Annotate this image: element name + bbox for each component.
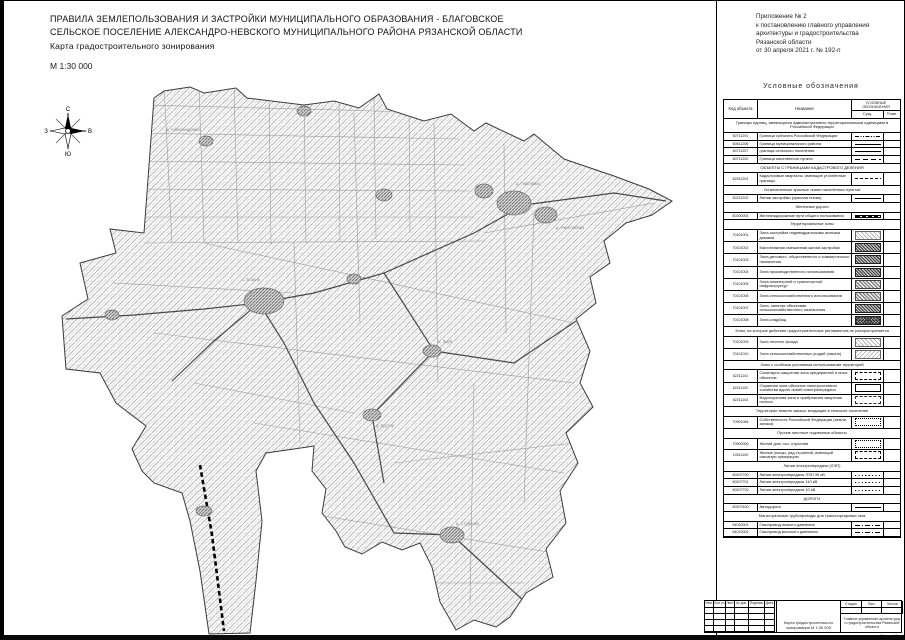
annex-note: Приложение № 2к постановлению главного у… — [756, 13, 905, 56]
revision-col-label: Кол.уч — [714, 601, 726, 608]
legend-row-name: Малоэтажная смешанная жилая застройка — [758, 242, 852, 254]
legend-row-code: 70101007 — [724, 303, 758, 315]
legend-row-symbol — [852, 439, 884, 450]
legend-row-name: Санитарно-защитная зона предприятий и ин… — [758, 370, 852, 382]
legend-row-name: граница сельского поселения — [758, 148, 852, 156]
settlement-label: д. Николаевка — [556, 225, 584, 230]
rect-solid-swatch-icon — [855, 384, 881, 392]
legend-col-symbols: УСЛОВНЫЕ ОБОЗНАЧЕНИЯ — [852, 100, 900, 111]
legend-title: Условные обозначения — [718, 83, 904, 90]
legend-row-plan — [884, 487, 900, 495]
map-sheet: ПРАВИЛА ЗЕМЛЕПОЛЬЗОВАНИЯ И ЗАСТРОЙКИ МУН… — [0, 0, 905, 640]
legend-section: Зоны с особыми условиями использования т… — [724, 361, 900, 371]
legend-section: Территории земель запаса, входящие в сел… — [724, 407, 900, 417]
legend-row-name: Граница населённого пункта — [758, 156, 852, 164]
stage-label: Стадия — [841, 601, 862, 608]
line-longdash-swatch-icon — [855, 159, 881, 160]
legend-row-code: 60611206 — [724, 141, 758, 149]
legend-section: Границы единиц, являющихся административ… — [724, 119, 900, 134]
legend-col-exist: Сущ. — [852, 111, 884, 119]
legend-row-code: 60711291 — [724, 133, 758, 141]
legend-row-code: 70101001 — [724, 230, 758, 242]
settlement-label: д. Александровка — [166, 127, 201, 132]
rect-dot-swatch-icon — [855, 440, 881, 448]
legend-row-symbol — [852, 156, 884, 164]
hatch-light-swatch-icon — [855, 231, 881, 240]
rect-dashdot-swatch-icon — [855, 396, 881, 404]
legend-row-code: 60711207 — [724, 148, 758, 156]
rect-dash-swatch-icon — [855, 372, 881, 380]
line-dashdot-swatch-icon — [855, 525, 881, 526]
hatch-light-swatch-icon — [855, 338, 881, 347]
legend-row-symbol — [852, 230, 884, 242]
frame-divider — [716, 1, 717, 640]
settlement-label: д. Павловка — [516, 181, 540, 186]
hatch-dark-swatch-icon — [855, 268, 881, 277]
legend-row-symbol — [852, 522, 884, 530]
legend-row-symbol — [852, 450, 884, 462]
revision-cell — [765, 626, 775, 632]
revision-col-label: Дата — [765, 601, 775, 608]
legend-row-plan — [884, 291, 900, 303]
legend-row-code: 60200001 — [724, 213, 758, 221]
legend-row-code: 70101002 — [724, 242, 758, 254]
legend-row-code: 70101004 — [724, 267, 758, 279]
legend-row-plan — [884, 242, 900, 254]
legend-row-plan — [884, 156, 900, 164]
hatch-dark-swatch-icon — [855, 304, 881, 313]
legend-row-name: Зона кладбищ — [758, 315, 852, 327]
legend-section: Линии электропередачи (ЛЭП) — [724, 462, 900, 472]
sheet-label: Лист — [862, 601, 883, 608]
line-dashdotdot-swatch-icon — [855, 136, 881, 137]
legend-row-name: Собственность Российской Федерации (земл… — [758, 417, 852, 429]
legend-row-symbol — [852, 472, 884, 480]
hatch-mid-swatch-icon — [855, 280, 881, 289]
legend-section: Территориальные зоны — [724, 220, 900, 230]
legend-row-name: Газопровод низкого давления — [758, 522, 852, 530]
legend-row-symbol — [852, 349, 884, 361]
legend-row-name: Линия электропередачи 10 кВ — [758, 487, 852, 495]
legend-row-code: 10011100 — [724, 450, 758, 462]
format-note: Формат А1 — [880, 634, 898, 638]
legend-row-name: Жилой дом, хоз. строения — [758, 439, 852, 450]
revision-col-label: Лист — [726, 601, 735, 608]
legend-row-symbol — [852, 213, 884, 221]
line-solid-swatch-icon — [855, 151, 881, 152]
legend-col-plan: План. — [884, 111, 900, 119]
legend-row-name: Кадастровые кварталы, имеющие уточнённые… — [758, 173, 852, 185]
legend-section: Железные дороги — [724, 203, 900, 213]
legend-row-name: Охранная зона объектов электросетевого х… — [758, 383, 852, 395]
legend-row-name: Зона инженерной и транспортной инфрастру… — [758, 279, 852, 291]
legend-row-symbol — [852, 315, 884, 327]
rect-dot-swatch-icon — [855, 418, 881, 426]
legend-row-name: Граница субъекта Российской Федерации — [758, 133, 852, 141]
legend-row-code: 70900000 — [724, 439, 758, 450]
legend-row-plan — [884, 148, 900, 156]
legend-row-symbol — [852, 291, 884, 303]
legend-row-name: Железнодорожные пути общего пользования — [758, 213, 852, 221]
legend-row-name: Линия электропередачи ЛЭП 35 кВ — [758, 472, 852, 480]
organization-name: Главное управление архитектуры и градост… — [841, 614, 903, 632]
legend-row-plan — [884, 315, 900, 327]
legend-row-code: 70101003 — [724, 254, 758, 266]
revision-cell — [726, 626, 735, 632]
legend-row-plan — [884, 383, 900, 395]
line-dashdot-swatch-icon — [855, 532, 881, 533]
legend-row-code: 64010002 — [724, 529, 758, 537]
revision-cell — [735, 626, 749, 632]
legend-row-plan — [884, 173, 900, 185]
territory-outline — [62, 87, 672, 634]
legend-row-plan — [884, 450, 900, 462]
legend-table: Код объекта Название УСЛОВНЫЕ ОБОЗНАЧЕНИ… — [723, 99, 901, 538]
legend-row-symbol — [852, 195, 884, 203]
legend-row-name: Граница муниципального района — [758, 141, 852, 149]
legend-row-symbol — [852, 504, 884, 512]
legend-row-plan — [884, 230, 900, 242]
legend-row-plan — [884, 349, 900, 361]
title-line-2: СЕЛЬСКОЕ ПОСЕЛЕНИЕ АЛЕКСАНДРО-НЕВСКОГО М… — [50, 26, 610, 39]
rail-swatch-icon — [855, 215, 881, 218]
revision-col-label: № док. — [735, 601, 749, 608]
subtitle: Карта градостроительного зонирования — [50, 40, 610, 53]
legend-row-name: Зона лесного фонда — [758, 337, 852, 349]
legend-row-symbol — [852, 267, 884, 279]
legend-row-code: 62211101 — [724, 370, 758, 382]
legend-row-plan — [884, 195, 900, 203]
rect-dash-swatch-icon — [855, 451, 881, 459]
legend-row-symbol — [852, 148, 884, 156]
legend-row-code: 70101010 — [724, 349, 758, 361]
legend-row-symbol — [852, 417, 884, 429]
compass-west-label: З — [44, 129, 48, 135]
settlement-label: д. Студёнки — [456, 521, 480, 526]
legend-row-plan — [884, 337, 900, 349]
settlement-label: п. Заря — [438, 339, 452, 344]
legend-row-code: 60207701 — [724, 479, 758, 487]
settlement-label: с. Благие — [242, 277, 261, 282]
legend-row-plan — [884, 370, 900, 382]
legend-section: ДОРОГИ — [724, 495, 900, 505]
revision-cell — [749, 626, 765, 632]
line-bold-swatch-icon — [855, 144, 881, 145]
legend-row-code: 70101005 — [724, 279, 758, 291]
legend-section: Установленные красные линии населённых п… — [724, 186, 900, 196]
legend-row-symbol — [852, 487, 884, 495]
legend-row-code: 70101008 — [724, 315, 758, 327]
legend-row-code: 62211102 — [724, 383, 758, 395]
legend-row-symbol — [852, 395, 884, 407]
legend-row-plan — [884, 395, 900, 407]
revision-table: Изм.Кол.учЛист№ док.ПодписьДата — [705, 601, 777, 632]
legend-row-symbol — [852, 141, 884, 149]
legend-row-name: Зона производственного использования — [758, 267, 852, 279]
stamp-right: Стадия Лист Листов Главное управление ар… — [841, 601, 903, 632]
hatch-cross-swatch-icon — [855, 316, 881, 325]
line-dot-swatch-icon — [855, 490, 881, 491]
legend-section: Магистральные трубопроводы для транспорт… — [724, 512, 900, 522]
legend-row-plan — [884, 479, 900, 487]
legend-row-symbol — [852, 370, 884, 382]
legend-row-plan — [884, 267, 900, 279]
legend-row-plan — [884, 279, 900, 291]
legend-row-code: 60207400 — [724, 504, 758, 512]
line-dash-swatch-icon — [855, 178, 881, 179]
sheets-label: Листов — [882, 601, 903, 608]
legend-row-name: Жилые улицы, ряд строений, имеющий сквоз… — [758, 450, 852, 462]
line-dot-swatch-icon — [855, 482, 881, 483]
legend-row-plan — [884, 439, 900, 450]
legend-row-plan — [884, 141, 900, 149]
legend-row-code: 62511201 — [724, 173, 758, 185]
legend-row-symbol — [852, 303, 884, 315]
document-title-cell: Карта градостроительного зонирования М 1… — [777, 601, 841, 632]
legend-row-name: Линия электропередачи 110 кВ — [758, 479, 852, 487]
line-solid-swatch-icon — [855, 198, 881, 199]
legend-row-name: Зона застройки индивидуальными жилыми до… — [758, 230, 852, 242]
legend-row-name: Зона сельскохозяйственных угодий (пашни) — [758, 349, 852, 361]
legend-row-symbol — [852, 173, 884, 185]
legend-row-plan — [884, 303, 900, 315]
hatch-dark-swatch-icon — [855, 255, 881, 264]
legend-row-name: Зона сельскохозяйственного использования — [758, 291, 852, 303]
map-scale: М 1:30 000 — [50, 61, 93, 71]
legend-row-plan — [884, 133, 900, 141]
legend-row-plan — [884, 522, 900, 530]
legend-section: Зоны, на которые действие градостроитель… — [724, 327, 900, 337]
legend-row-name: Линия застройки (красная линия) — [758, 195, 852, 203]
legend-row-code: 70101006 — [724, 291, 758, 303]
legend-row-symbol — [852, 529, 884, 537]
legend-row-code: 60207700 — [724, 472, 758, 480]
title-line-1: ПРАВИЛА ЗЕМЛЕПОЛЬЗОВАНИЯ И ЗАСТРОЙКИ МУН… — [50, 13, 610, 26]
legend-row-symbol — [852, 133, 884, 141]
legend-row-plan — [884, 472, 900, 480]
legend-row-code: 64010001 — [724, 522, 758, 530]
legend-col-name: Название — [758, 100, 852, 119]
legend-row-name: Зона, занятая объектами сельскохозяйстве… — [758, 303, 852, 315]
legend-row-code: 62211103 — [724, 395, 758, 407]
legend-section: ОБЪЕКТЫ С ГРАНИЦАМИ КАДАСТРОВОГО ДЕЛЕНИЯ — [724, 164, 900, 174]
legend-section: Прочие местные подземные объекты — [724, 429, 900, 439]
hatch-mid-swatch-icon — [855, 292, 881, 301]
legend-row-plan — [884, 254, 900, 266]
legend-row-code: 70101009 — [724, 337, 758, 349]
revision-cell — [705, 626, 714, 632]
revision-col-label: Изм. — [705, 601, 714, 608]
settlement-label: д. Крутое — [376, 423, 395, 428]
legend-row-symbol — [852, 383, 884, 395]
legend-row-symbol — [852, 479, 884, 487]
hatch-dark-swatch-icon — [855, 243, 881, 252]
legend-row-plan — [884, 529, 900, 537]
page-title: ПРАВИЛА ЗЕМЛЕПОЛЬЗОВАНИЯ И ЗАСТРОЙКИ МУН… — [50, 13, 610, 53]
legend-row-symbol — [852, 242, 884, 254]
legend-row-plan — [884, 213, 900, 221]
hatch-light2-swatch-icon — [855, 350, 881, 359]
revision-cell — [714, 626, 726, 632]
legend-row-name: Водоохранная зона и прибрежная защитная … — [758, 395, 852, 407]
legend-row-name: Автодорога — [758, 504, 852, 512]
legend-col-code: Код объекта — [724, 100, 758, 119]
legend-row-code: 60211202 — [724, 195, 758, 203]
legend-row-name: Зона делового, общественного и коммерчес… — [758, 254, 852, 266]
legend-row-symbol — [852, 254, 884, 266]
zoning-map: с. Благиед. Павловкад. Николаевкад. Алек… — [54, 83, 714, 635]
legend-row-symbol — [852, 279, 884, 291]
revision-col-label: Подпись — [749, 601, 765, 608]
legend-row-plan — [884, 504, 900, 512]
legend-row-code: 70901084 — [724, 417, 758, 429]
line-solid-swatch-icon — [855, 507, 881, 508]
legend-row-code: 60711202 — [724, 156, 758, 164]
line-dot-swatch-icon — [855, 475, 881, 476]
title-block: Изм.Кол.учЛист№ док.ПодписьДата Карта гр… — [704, 600, 902, 633]
legend-row-name: Газопровод высокого давления — [758, 529, 852, 537]
legend-row-code: 60207702 — [724, 487, 758, 495]
legend-row-symbol — [852, 337, 884, 349]
legend-row-plan — [884, 417, 900, 429]
